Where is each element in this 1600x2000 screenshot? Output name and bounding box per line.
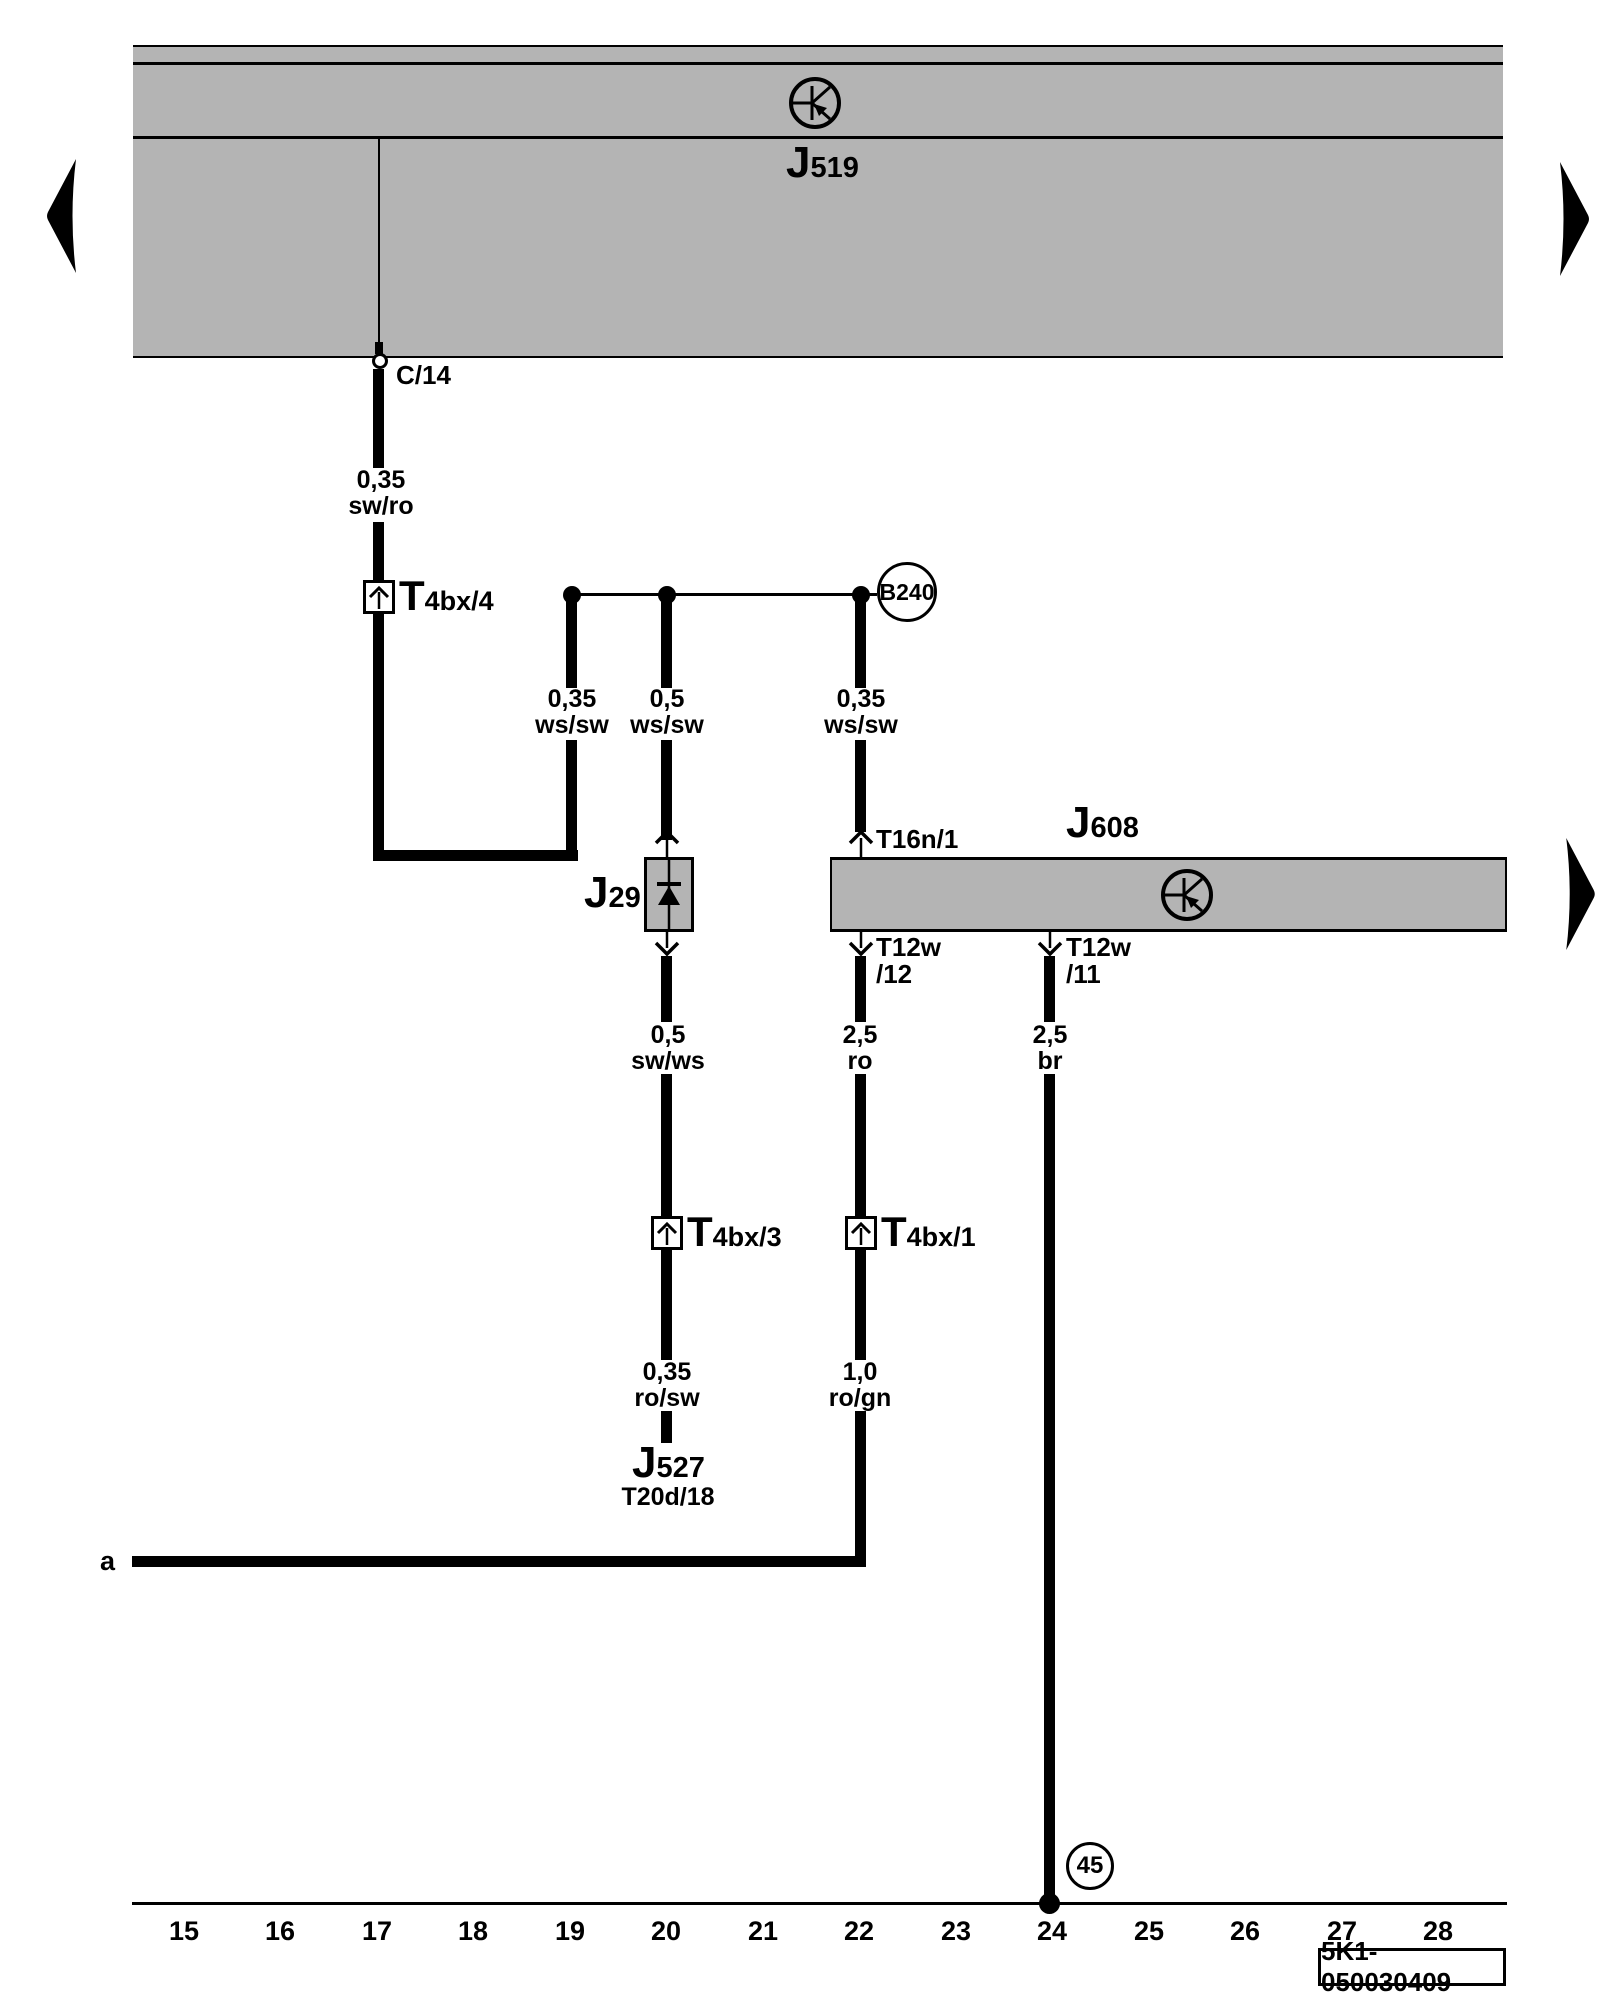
wire-size: 0,35 xyxy=(306,467,456,493)
wire-label-ws-sw-3: 0,35 ws/sw xyxy=(786,686,936,738)
wire-ro-sw-seg1 xyxy=(661,1248,672,1360)
bottom-baseline xyxy=(132,1902,1507,1905)
wire-ro-gn-seg1 xyxy=(855,1248,866,1360)
diagram-code-box: 5K1-050030409 xyxy=(1318,1948,1506,1986)
wire-sw-ws-seg1 xyxy=(661,956,672,1022)
continuation-arrow-right-top-icon xyxy=(1558,160,1592,278)
wire-ws-sw2-seg1 xyxy=(661,595,672,688)
j527-label: J527 xyxy=(632,1438,705,1488)
wire-a-label: a xyxy=(100,1548,115,1575)
t12w12-label-line2: /12 xyxy=(876,961,941,988)
wire-ws-sw1-seg2 xyxy=(566,740,577,861)
wire-size: 0,35 xyxy=(592,1359,742,1385)
wire-br-seg1 xyxy=(1044,956,1055,1022)
wire-ws-sw3-seg2 xyxy=(855,740,866,832)
wire-size: 0,35 xyxy=(786,686,936,712)
ruler-col-25: 25 xyxy=(1109,1916,1189,1947)
t4bx3-label-main: T xyxy=(687,1208,713,1255)
ruler-col-24: 24 xyxy=(1012,1916,1092,1947)
b240-label: B240 xyxy=(880,579,935,606)
junction-dot-1 xyxy=(563,586,581,604)
wire-color: ro xyxy=(785,1048,935,1074)
j519-internal-lead-line xyxy=(378,139,380,344)
wire-color: ws/sw xyxy=(592,712,742,738)
wire-sw-ro-seg1 xyxy=(373,369,384,468)
j29-label-main: J xyxy=(584,868,608,917)
b240-connection-circle: B240 xyxy=(877,562,937,622)
ruler-col-20: 20 xyxy=(626,1916,706,1947)
ruler-col-19: 19 xyxy=(530,1916,610,1947)
t12w11-label: T12w /11 xyxy=(1066,934,1131,988)
j29-label: J29 xyxy=(584,868,641,918)
j519-label-sub: 519 xyxy=(810,152,858,184)
t4bx1-label-sub: 4bx/1 xyxy=(907,1222,976,1252)
j519-label: J519 xyxy=(786,138,859,188)
wire-size: 1,0 xyxy=(785,1359,935,1385)
t12w12-label: T12w /12 xyxy=(876,934,941,988)
ground-45-circle: 45 xyxy=(1066,1842,1114,1890)
ruler-col-23: 23 xyxy=(916,1916,996,1947)
t4bx1-label: T4bx/1 xyxy=(881,1208,976,1256)
wire-label-ro-sw: 0,35 ro/sw xyxy=(592,1359,742,1411)
wire-ws-sw3-seg1 xyxy=(855,595,866,688)
ground-45-label: 45 xyxy=(1077,1852,1104,1880)
junction-line xyxy=(572,593,877,596)
wire-sw-ro-seg3 xyxy=(373,614,384,861)
wire-label-sw-ro: 0,35 sw/ro xyxy=(306,467,456,519)
t4bx3-label: T4bx/3 xyxy=(687,1208,782,1256)
t4bx4-label: T4bx/4 xyxy=(399,572,494,620)
c14-label: C/14 xyxy=(396,362,451,389)
ruler-col-22: 22 xyxy=(819,1916,899,1947)
j519-inner-line-top xyxy=(133,62,1503,65)
wire-elbow-horizontal xyxy=(373,850,578,861)
wire-ro-seg2 xyxy=(855,1074,866,1218)
wire-label-ws-sw-2: 0,5 ws/sw xyxy=(592,686,742,738)
wire-label-ro-gn: 1,0 ro/gn xyxy=(785,1359,935,1411)
wire-color: sw/ro xyxy=(306,493,456,519)
t4bx4-label-main: T xyxy=(399,572,425,619)
j527-pin-label: T20d/18 xyxy=(593,1484,743,1510)
ruler-col-18: 18 xyxy=(433,1916,513,1947)
ruler-col-17: 17 xyxy=(337,1916,417,1947)
j527-label-main: J xyxy=(632,1438,656,1487)
t16n1-label: T16n/1 xyxy=(876,826,958,853)
wire-size: 2,5 xyxy=(785,1022,935,1048)
wire-label-sw-ws: 0,5 sw/ws xyxy=(593,1022,743,1074)
wire-label-br: 2,5 br xyxy=(975,1022,1125,1074)
t12w11-label-line1: T12w xyxy=(1066,934,1131,961)
continuation-arrow-left-icon xyxy=(44,157,78,275)
ruler-col-15: 15 xyxy=(144,1916,224,1947)
wire-ro-gn-seg2 xyxy=(855,1411,866,1567)
wire-a-horizontal xyxy=(132,1556,866,1567)
t4bx4-label-sub: 4bx/4 xyxy=(425,586,494,616)
diagram-code-label: 5K1-050030409 xyxy=(1321,1936,1503,1998)
t4bx3-label-sub: 4bx/3 xyxy=(713,1222,782,1252)
wire-ro-seg1 xyxy=(855,956,866,1022)
j519-control-unit-symbol-icon xyxy=(787,75,843,131)
t12w11-pin-down-icon xyxy=(1035,930,1065,958)
wire-ws-sw2-seg2 xyxy=(661,740,672,840)
wire-color: ws/sw xyxy=(786,712,936,738)
wire-color: ro/sw xyxy=(592,1385,742,1411)
continuation-arrow-right-bottom-icon xyxy=(1564,836,1598,952)
t4bx1-label-main: T xyxy=(881,1208,907,1255)
j29-pin-up-icon xyxy=(652,828,682,858)
wiring-diagram-page: J519 C/14 0,35 sw/ro T4bx/4 0,35 ws/sw xyxy=(0,0,1600,2000)
j29-label-sub: 29 xyxy=(608,882,640,914)
t4bx3-connector-icon xyxy=(651,1216,683,1250)
wire-size: 0,5 xyxy=(592,686,742,712)
j527-label-sub: 527 xyxy=(656,1452,704,1484)
wire-br-seg2 xyxy=(1044,1074,1055,1900)
wire-color: sw/ws xyxy=(593,1048,743,1074)
ruler-col-26: 26 xyxy=(1205,1916,1285,1947)
wire-sw-ws-seg2 xyxy=(661,1074,672,1218)
j519-label-main: J xyxy=(786,138,810,187)
t12w11-label-line2: /11 xyxy=(1066,961,1131,988)
wire-size: 0,5 xyxy=(593,1022,743,1048)
ruler-col-16: 16 xyxy=(240,1916,320,1947)
t12w12-pin-down-icon xyxy=(846,930,876,958)
ruler-col-21: 21 xyxy=(723,1916,803,1947)
wire-sw-ro-seg2 xyxy=(373,522,384,582)
wire-ws-sw1-seg1 xyxy=(566,595,577,688)
c14-plug-connection-icon xyxy=(372,353,388,369)
wire-color: ro/gn xyxy=(785,1385,935,1411)
j608-label-sub: 608 xyxy=(1090,812,1138,844)
j608-control-unit-symbol-icon xyxy=(1159,867,1215,923)
t4bx1-connector-icon xyxy=(845,1216,877,1250)
j29-diode-icon xyxy=(644,857,694,932)
t12w12-label-line1: T12w xyxy=(876,934,941,961)
t16n1-pin-up-icon xyxy=(846,828,876,858)
j608-label-main: J xyxy=(1066,798,1090,847)
j29-pin-down-icon xyxy=(652,930,682,958)
wire-size: 2,5 xyxy=(975,1022,1125,1048)
wire-color: br xyxy=(975,1048,1125,1074)
wire-label-ro: 2,5 ro xyxy=(785,1022,935,1074)
j608-label: J608 xyxy=(1066,798,1139,848)
t4bx4-connector-icon xyxy=(363,580,395,614)
